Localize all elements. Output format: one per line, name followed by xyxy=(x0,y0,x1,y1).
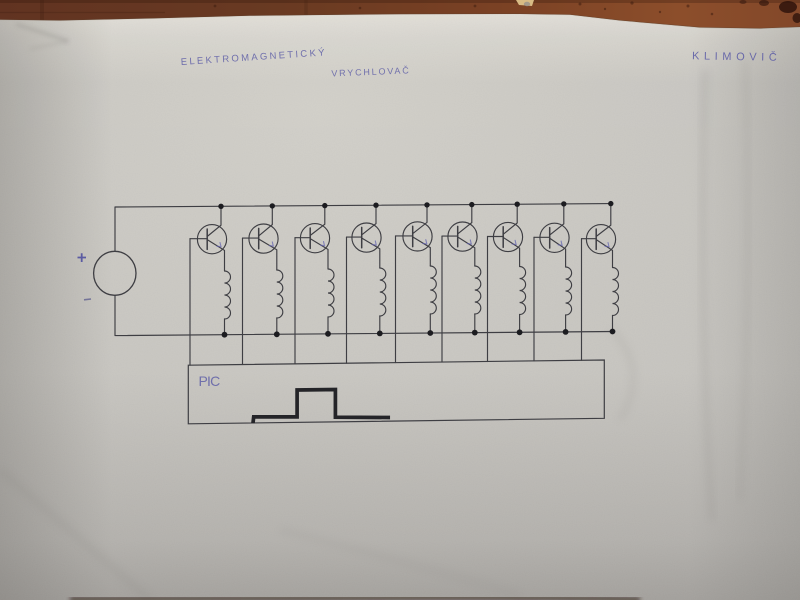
svg-text:KLIMOVIČ: KLIMOVIČ xyxy=(692,49,782,64)
svg-text:PIC: PIC xyxy=(199,373,221,389)
